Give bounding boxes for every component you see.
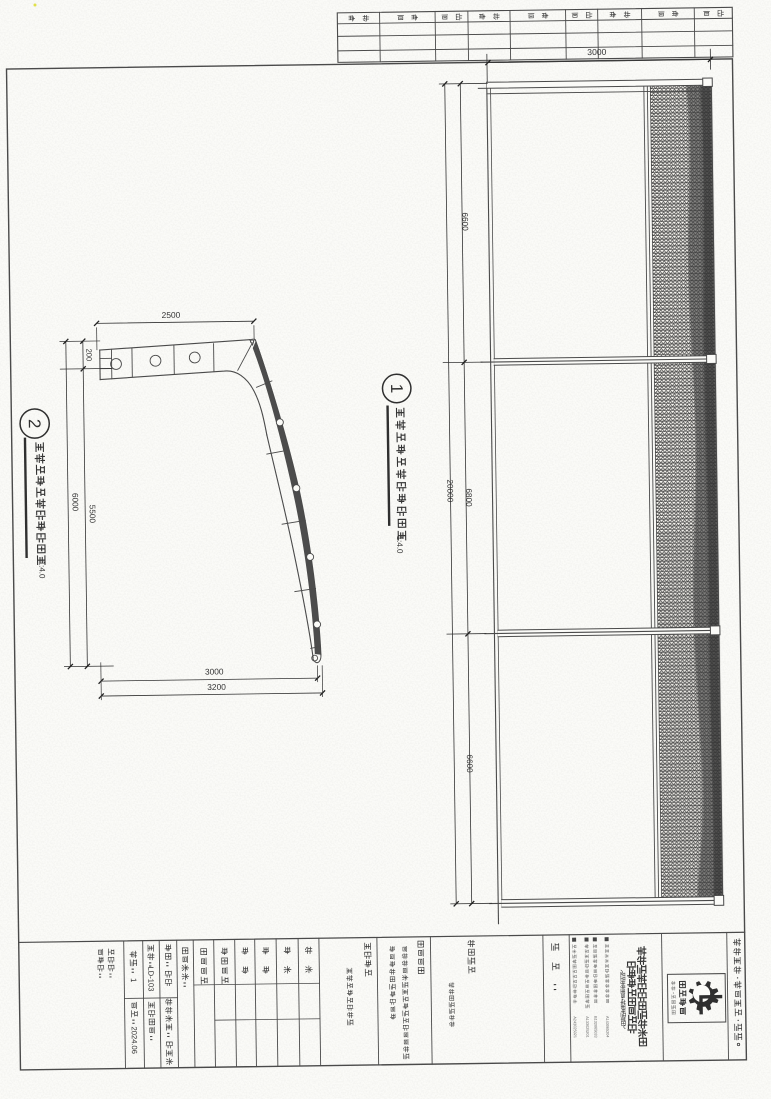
svg-text:6600: 6600 <box>460 212 469 231</box>
svg-text:2500: 2500 <box>162 310 181 320</box>
svg-text:6000: 6000 <box>70 493 79 512</box>
svg-text:B132065033: B132065033 <box>593 1016 597 1038</box>
svg-text:5500: 5500 <box>88 505 97 524</box>
svg-text:6800: 6800 <box>464 488 473 507</box>
svg-text:A243025021: A243025021 <box>573 1016 577 1038</box>
svg-text:200: 200 <box>84 348 93 361</box>
svg-text:1:4.0: 1:4.0 <box>37 561 46 579</box>
svg-text:3000: 3000 <box>205 666 224 676</box>
svg-text:20000: 20000 <box>445 479 454 502</box>
svg-text:6600: 6600 <box>465 754 474 773</box>
svg-text:2: 2 <box>25 419 44 429</box>
svg-text:LD-103: LD-103 <box>146 966 155 991</box>
svg-text:A143065204: A143065204 <box>605 1016 609 1038</box>
svg-text:1: 1 <box>129 978 138 983</box>
svg-text:3000: 3000 <box>587 47 606 57</box>
svg-text:1: 1 <box>387 384 406 394</box>
svg-text:A133025201: A133025201 <box>585 1016 589 1038</box>
svg-text:1:4.0: 1:4.0 <box>395 536 404 554</box>
svg-text:2024.06: 2024.06 <box>130 1026 139 1054</box>
svg-text:3200: 3200 <box>207 682 226 692</box>
